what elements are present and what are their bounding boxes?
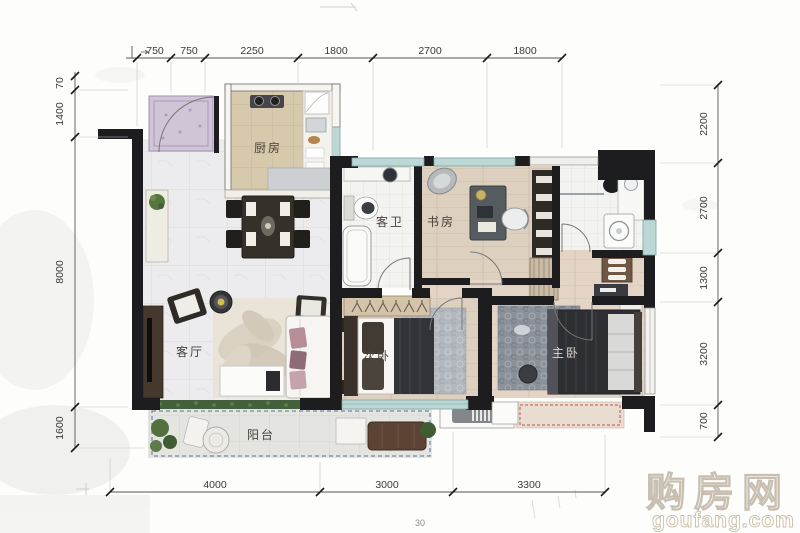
dim-label: 2700 — [418, 45, 442, 57]
wall-white — [530, 157, 598, 165]
stray-dim-fragment: 30 — [415, 518, 425, 528]
throw-item — [514, 325, 530, 335]
pillow — [289, 327, 308, 349]
dim-label: 2200 — [698, 112, 710, 136]
wardrobe — [344, 296, 430, 316]
dimension-bottom: 4000 3000 3300 30 — [106, 479, 609, 528]
round-table — [203, 427, 229, 453]
dim-label: 3000 — [375, 479, 399, 491]
dim-label: 1600 — [54, 416, 66, 440]
watermark-site-url: goufang.com — [652, 509, 795, 532]
floor-plan-svg: 厨房 客卫 书房 客厅 次卧 主卧 阳台 750 750 2250 1800 2… — [0, 0, 800, 533]
dim-label: 4000 — [203, 479, 227, 491]
living-room-label: 客厅 — [176, 344, 204, 359]
dining-chair — [294, 200, 310, 218]
plant — [420, 422, 436, 438]
dining-chair — [226, 230, 242, 248]
equipment-platform — [516, 402, 624, 428]
window — [643, 220, 656, 255]
study-label: 书房 — [427, 214, 455, 229]
window-sill — [492, 402, 518, 424]
floor-plan-image: 厨房 客卫 书房 客厅 次卧 主卧 阳台 750 750 2250 1800 2… — [0, 0, 800, 533]
stool — [519, 365, 537, 383]
dim-label: 1300 — [698, 266, 710, 290]
dimension-top: 750 750 2250 1800 2700 1800 — [126, 45, 566, 62]
tv — [147, 318, 152, 382]
dim-label: 1800 — [513, 45, 537, 57]
kitchen-label: 厨房 — [254, 140, 282, 155]
outdoor-sofa — [368, 422, 426, 450]
pillow — [289, 350, 307, 370]
dim-label: 700 — [698, 412, 710, 430]
bench — [336, 418, 366, 444]
fridge — [305, 92, 329, 114]
second-bedroom-furniture — [342, 296, 466, 396]
window — [352, 158, 424, 166]
laptop — [477, 206, 493, 218]
kitchen-item — [308, 136, 320, 144]
desk-chair — [502, 208, 528, 230]
dim-label: 3300 — [517, 479, 541, 491]
dim-label: 750 — [180, 45, 198, 57]
tv-console — [143, 306, 163, 398]
headboard — [634, 312, 642, 392]
guest-bath-label: 客卫 — [376, 214, 404, 229]
wash-basin — [383, 168, 397, 182]
dim-label: 70 — [54, 77, 66, 89]
watermark: 购房网 goufang.com — [646, 471, 795, 532]
headboard — [344, 316, 358, 396]
door-leaf — [214, 96, 219, 153]
desk-lamp — [476, 190, 486, 200]
kitchen-window — [332, 127, 340, 159]
kitchen-island — [268, 168, 332, 190]
window — [434, 158, 515, 166]
balcony-label: 阳台 — [247, 427, 275, 442]
pillow — [289, 370, 307, 389]
dim-label: 8000 — [54, 260, 66, 284]
second-bedroom-label: 次卧 — [363, 349, 391, 363]
dim-label: 750 — [146, 45, 164, 57]
window — [342, 400, 468, 409]
entry-mat — [149, 96, 213, 151]
dim-label: 1400 — [54, 102, 66, 126]
dimension-right: 2200 2700 1300 3200 700 — [698, 81, 722, 441]
dim-label: 2700 — [698, 196, 710, 220]
dim-label: 1800 — [324, 45, 348, 57]
dim-label: 3200 — [698, 342, 710, 366]
dining-chair — [226, 200, 242, 218]
dining-chair — [294, 230, 310, 248]
kitchen-sink — [306, 118, 326, 132]
master-bedroom-label: 主卧 — [552, 346, 580, 360]
bath-counter — [344, 167, 410, 181]
dim-label: 2250 — [240, 45, 264, 57]
plant — [151, 419, 169, 437]
